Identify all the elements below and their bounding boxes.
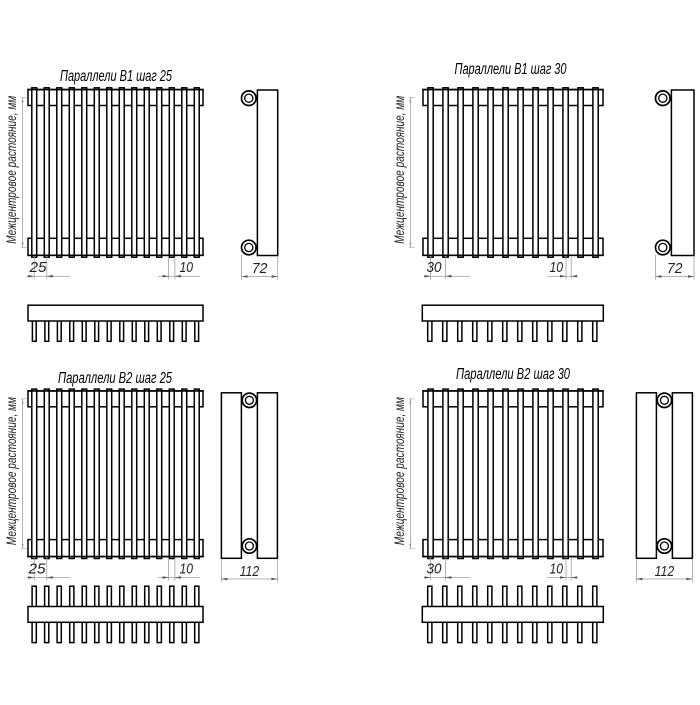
svg-text:10: 10 bbox=[180, 259, 194, 276]
svg-text:Межцентровое растояние, мм: Межцентровое растояние, мм bbox=[392, 96, 407, 244]
svg-text:10: 10 bbox=[550, 259, 564, 276]
svg-text:Параллели В2 шаг 25: Параллели В2 шаг 25 bbox=[58, 370, 172, 387]
svg-text:72: 72 bbox=[252, 260, 268, 277]
svg-text:30: 30 bbox=[427, 561, 443, 578]
svg-text:Параллели В1 шаг 30: Параллели В1 шаг 30 bbox=[455, 61, 567, 78]
svg-text:72: 72 bbox=[667, 260, 683, 277]
svg-text:Параллели В1 шаг 25: Параллели В1 шаг 25 bbox=[60, 68, 172, 85]
svg-text:Межцентровое растояние, мм: Межцентровое растояние, мм bbox=[4, 397, 19, 545]
svg-text:10: 10 bbox=[180, 561, 194, 578]
svg-text:112: 112 bbox=[240, 563, 260, 580]
svg-text:25: 25 bbox=[27, 561, 46, 578]
svg-text:Межцентровое растояние, мм: Межцентровое растояние, мм bbox=[4, 96, 19, 244]
svg-text:10: 10 bbox=[550, 561, 564, 578]
svg-text:30: 30 bbox=[427, 259, 443, 276]
svg-text:Параллели В2 шаг 30: Параллели В2 шаг 30 bbox=[456, 366, 570, 383]
svg-text:112: 112 bbox=[655, 563, 675, 580]
svg-text:25: 25 bbox=[28, 259, 47, 276]
svg-text:Межцентровое растояние, мм: Межцентровое растояние, мм bbox=[392, 397, 407, 545]
